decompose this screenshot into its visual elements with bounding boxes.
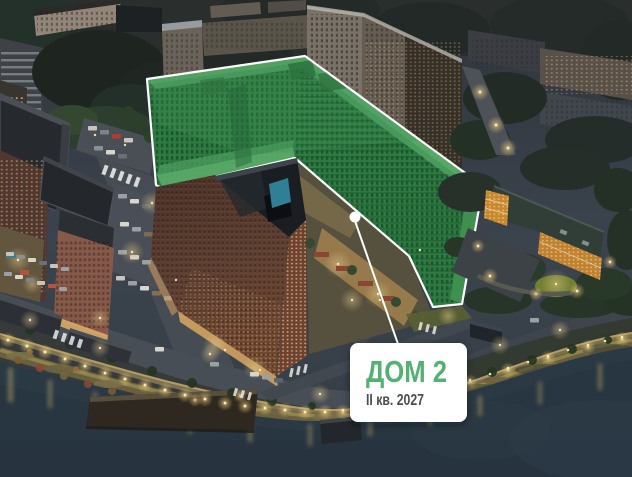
svg-text:ДОМ 2: ДОМ 2 [366, 354, 447, 389]
svg-text:II кв. 2027: II кв. 2027 [366, 392, 424, 409]
